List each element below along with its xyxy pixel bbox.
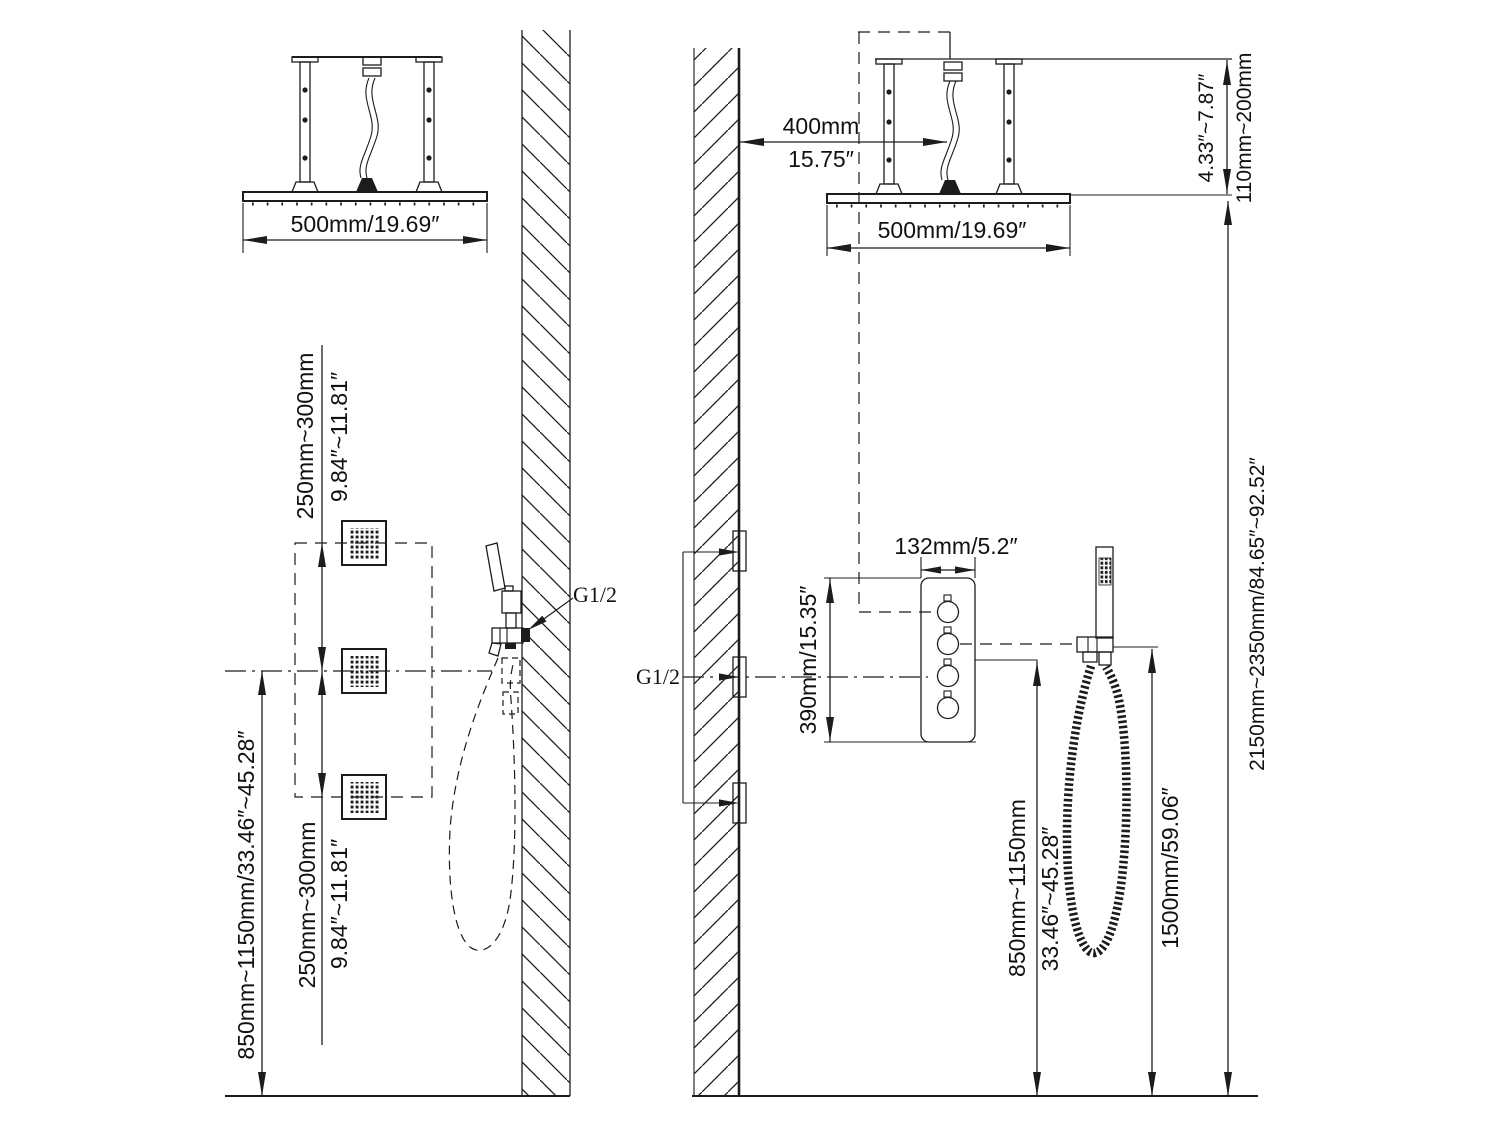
valve-knob-2	[938, 627, 959, 655]
jet-gap-bottom-mm-label: 250mm~300mm	[294, 822, 320, 989]
body-jet-top	[342, 521, 386, 565]
valve-knob-4	[938, 691, 959, 719]
hose-length-label: 1500mm/59.06″	[1157, 787, 1183, 949]
left-ceiling-shower	[243, 57, 487, 204]
right-thread-label: G1/2	[636, 664, 680, 689]
ceiling-drop-dim: 4.33″~7.87″ 110mm~200mm	[1070, 53, 1256, 204]
wall-offset-mm-label: 400mm	[783, 113, 860, 139]
spout-height-label: 850mm~1150mm/33.46″~45.28″	[233, 730, 259, 1059]
jet-gap-bottom-in-label: 9.84″~11.81″	[326, 839, 352, 969]
waterfall-spout	[449, 543, 530, 950]
valve-knob-3	[938, 659, 959, 687]
water-stream	[449, 658, 515, 950]
valve-spread-dim: 390mm/15.35″	[795, 578, 976, 742]
right-wall	[694, 48, 739, 1096]
left-supply-hose-icon	[356, 57, 381, 192]
right-view: 400mm 15.75″ 500mm/19.69″ 4.33″~7.87″ 11…	[636, 32, 1269, 1096]
valve-height-mm-label: 850mm~1150mm	[1004, 799, 1030, 977]
valve-height-in-label: 33.46″~45.28″	[1037, 827, 1063, 972]
right-supply-hose-icon	[939, 62, 962, 194]
hand-shower	[1067, 547, 1127, 953]
shower-hose-coil	[1067, 666, 1127, 953]
ceiling-drop-mm-label: 110mm~200mm	[1233, 53, 1256, 204]
jet-gap-bottom-dim: 250mm~300mm 9.84″~11.81″	[294, 671, 352, 1045]
valve-width-dim: 132mm/5.2″	[894, 533, 1017, 578]
head-height-dim: 2150mm~2350mm/84.65″~92.52″	[1224, 201, 1269, 1096]
wall-offset-in-label: 15.75″	[788, 146, 854, 172]
thermostatic-valve	[921, 578, 975, 742]
valve-height-dim: 850mm~1150mm 33.46″~45.28″	[975, 660, 1063, 1096]
left-wall	[522, 30, 570, 1096]
spout-height-dim: 850mm~1150mm/33.46″~45.28″	[233, 671, 266, 1096]
jet-gap-top-mm-label: 250mm~300mm	[292, 353, 318, 520]
valve-spread-label: 390mm/15.35″	[795, 586, 821, 735]
body-jet-bottom	[342, 775, 386, 819]
concealed-box	[858, 32, 950, 59]
ceiling-supply-route	[859, 32, 934, 612]
left-head-width-label: 500mm/19.69″	[291, 211, 440, 237]
right-ceiling-shower	[827, 59, 1070, 206]
wall-connector-icon	[521, 628, 530, 642]
left-head-width-dim: 500mm/19.69″	[243, 203, 487, 253]
valve-knob-1	[938, 595, 959, 623]
right-head-width-label: 500mm/19.69″	[878, 217, 1027, 243]
jet-gap-top-dim: 250mm~300mm 9.84″~11.81″	[292, 345, 352, 671]
left-thread-label: G1/2	[573, 582, 617, 607]
left-view: 500mm/19.69″ 250mm~300mm	[225, 30, 617, 1096]
installation-diagram: 500mm/19.69″ 250mm~300mm	[0, 0, 1500, 1125]
valve-width-label: 132mm/5.2″	[894, 533, 1017, 559]
jet-gap-top-in-label: 9.84″~11.81″	[326, 372, 352, 502]
ceiling-drop-in-label: 4.33″~7.87″	[1195, 73, 1218, 182]
wall-offset-dim: 400mm 15.75″	[740, 113, 947, 172]
diagram-canvas: 500mm/19.69″ 250mm~300mm	[0, 0, 1500, 1125]
right-head-width-dim: 500mm/19.69″	[827, 205, 1070, 256]
head-height-label: 2150mm~2350mm/84.65″~92.52″	[1246, 457, 1269, 771]
